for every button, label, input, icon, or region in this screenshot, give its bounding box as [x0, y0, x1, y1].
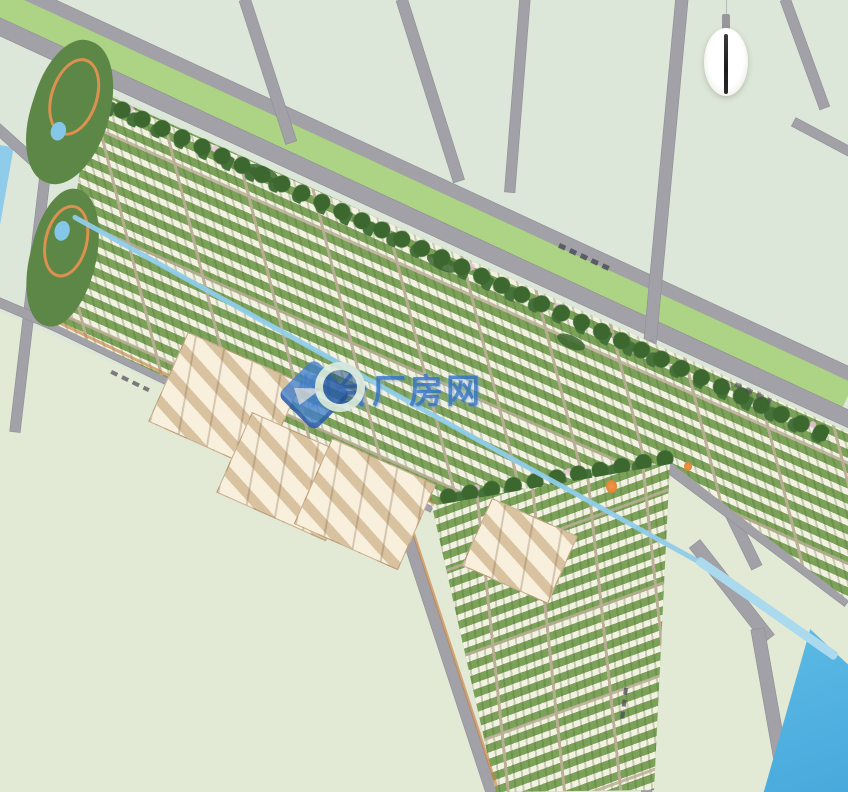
watermark-logo-icon [298, 348, 386, 428]
masterplan-map: 烟台厂房网 [0, 0, 848, 792]
orange-marker-2 [684, 462, 692, 471]
park-path [39, 51, 109, 142]
cross-street-2 [397, 0, 465, 183]
logo-ring [315, 362, 365, 412]
north-compass [700, 0, 760, 110]
compass-needle-icon [724, 34, 728, 94]
park-path [36, 200, 97, 282]
cross-street-5-branch [792, 118, 848, 159]
site-watermark: 烟台厂房网 [298, 346, 598, 430]
orange-marker-1 [606, 480, 617, 493]
cross-street-5 [781, 0, 830, 109]
cross-street-3 [505, 0, 530, 192]
water-strip-left [0, 144, 14, 320]
